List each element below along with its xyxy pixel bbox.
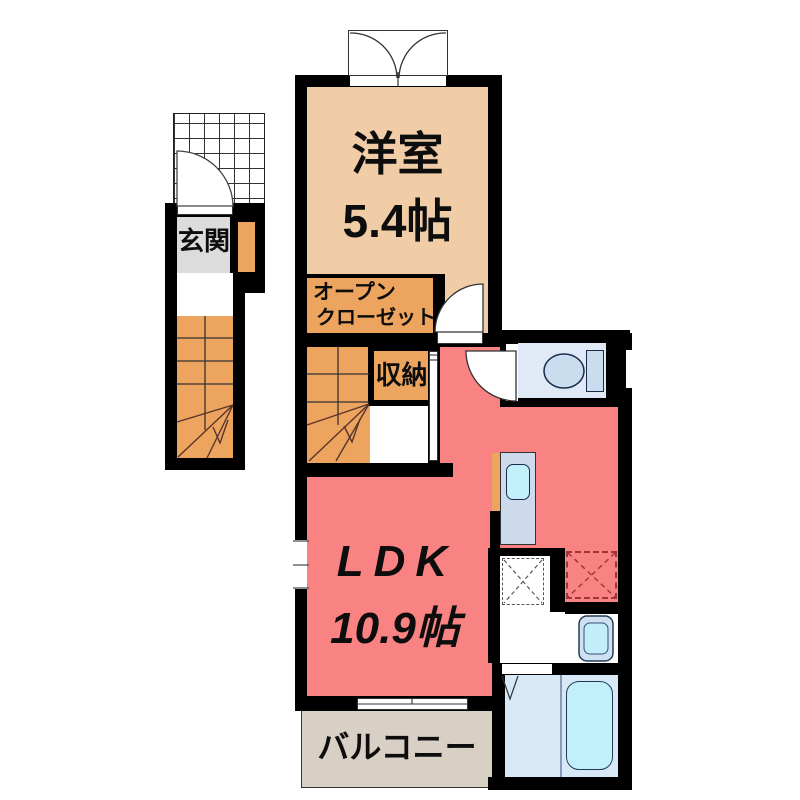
refrigerator-space-icon [566, 551, 617, 599]
bathtub-icon [566, 681, 613, 770]
balcony-sliding-window-icon [357, 698, 468, 710]
shoe-cabinet-icon [238, 222, 255, 272]
stair-landing [370, 406, 428, 463]
entrance-landing [177, 273, 233, 316]
entrance-doorway [177, 204, 233, 215]
entrance-bottom-wall [165, 458, 245, 470]
entrance-porch-grid [173, 113, 265, 215]
exterior-staircase-icon [177, 316, 233, 458]
french-doors-icon [348, 30, 448, 76]
western-room-label: 洋室 [307, 130, 488, 178]
floor-plan: 洋室 5.4帖 オープン クローゼット 収納 玄関 LDK 10.9帖 バルコニ… [0, 0, 800, 800]
open-closet-label-line2: クローゼット [316, 308, 436, 329]
ldk-label: LDK [297, 539, 497, 585]
washing-machine-space-icon [502, 558, 544, 605]
balcony-label: バルコニー [301, 731, 493, 765]
entrance-label: 玄関 [175, 228, 233, 255]
washbasin-area [550, 612, 618, 663]
bathroom-west-wall [492, 663, 505, 790]
western-room-door-leaf [437, 331, 483, 344]
toilet-doorway [506, 344, 518, 401]
kitchen-side-panel [492, 453, 500, 511]
ldk-size-label: 10.9帖 [290, 606, 500, 652]
refrigerator-nook-wall [550, 548, 565, 612]
storage-label: 収納 [368, 362, 435, 389]
stairs-bottom-wall [295, 463, 453, 477]
western-room-size-label: 5.4帖 [300, 197, 495, 245]
refrigerator-nook-bottom-wall [565, 602, 618, 614]
toilet-tank-icon [586, 350, 604, 392]
open-closet-label-line1: オープン [313, 282, 396, 304]
kitchen-sink-icon [506, 464, 530, 500]
toilet-window [626, 350, 632, 388]
entrance-right-wall [233, 293, 245, 470]
south-wall [488, 777, 632, 790]
interior-staircase-icon [307, 347, 370, 463]
bathroom-doorway [502, 664, 552, 674]
french-doors-opening [350, 76, 446, 86]
